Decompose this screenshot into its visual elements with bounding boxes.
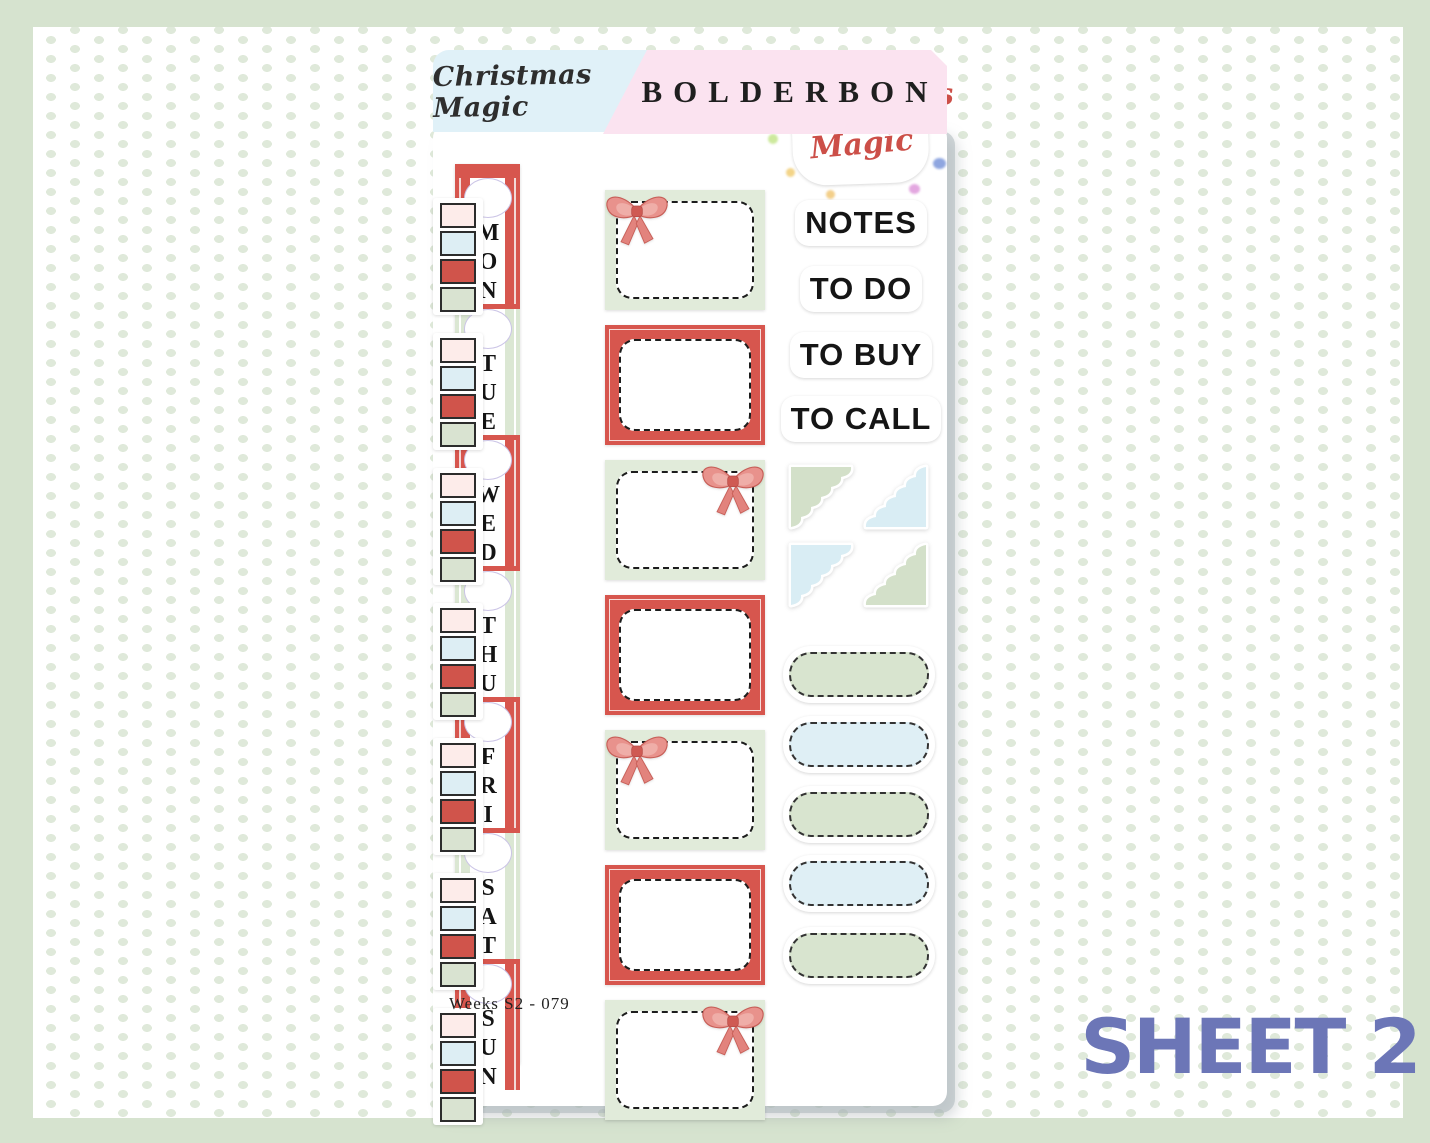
swatch-blue: [440, 231, 476, 256]
bow-icon: [599, 722, 675, 802]
swatch-red: [440, 799, 476, 824]
box-sticker-green: [605, 190, 765, 310]
swatch-pink: [440, 743, 476, 768]
swatch-blue: [440, 636, 476, 661]
sparkle-dot: [933, 158, 946, 169]
page-label: SHEET 2: [1075, 1002, 1425, 1091]
pill-sticker: [783, 855, 935, 912]
swatch-group-sticker: [433, 198, 483, 315]
box-sticker-green: [605, 460, 765, 580]
swatch-group-sticker: [433, 738, 483, 855]
brand-tab: BOLDERBON: [603, 50, 947, 134]
phrase-sticker: TO DO: [778, 266, 944, 312]
swatch-green: [440, 1097, 476, 1122]
swatch-pink: [440, 608, 476, 633]
swatch-green: [440, 557, 476, 582]
bow-icon: [599, 182, 675, 262]
swatch-group-sticker: [433, 333, 483, 450]
swatch-green: [440, 287, 476, 312]
writing-area: [619, 339, 751, 431]
swatch-green: [440, 422, 476, 447]
pill-fill-green: [789, 652, 929, 697]
swatch-green: [440, 827, 476, 852]
swatch-pink: [440, 203, 476, 228]
swatch-blue: [440, 906, 476, 931]
swatch-green: [440, 692, 476, 717]
pill-sticker: [783, 646, 935, 703]
writing-area: [619, 609, 751, 701]
box-sticker-red: [605, 595, 765, 715]
swatch-green: [440, 962, 476, 987]
swatch-red: [440, 529, 476, 554]
phrase-label: TO CALL: [781, 396, 942, 442]
phrase-label: TO BUY: [790, 332, 933, 378]
swatch-red: [440, 259, 476, 284]
swatch-red: [440, 664, 476, 689]
pill-fill-blue: [789, 722, 929, 767]
swatch-red: [440, 1069, 476, 1094]
phrase-sticker: NOTES: [778, 200, 944, 246]
box-sticker-green: [605, 1000, 765, 1120]
sparkle-dot: [909, 184, 920, 194]
swatch-red: [440, 394, 476, 419]
swatch-blue: [440, 501, 476, 526]
corner-sticker-green: [863, 542, 929, 608]
bow-icon: [695, 992, 771, 1072]
pill-fill-green: [789, 792, 929, 837]
pill-sticker: [783, 716, 935, 773]
strip-top-cap: [455, 164, 520, 173]
swatch-pink: [440, 338, 476, 363]
swatch-pink: [440, 878, 476, 903]
swatch-group-sticker: [433, 873, 483, 990]
brand-tab-label: BOLDERBON: [611, 74, 938, 110]
pill-sticker: [783, 927, 935, 984]
phrase-label: NOTES: [795, 200, 927, 246]
pill-fill-blue: [789, 861, 929, 906]
swatch-group-sticker: [433, 468, 483, 585]
box-sticker-red: [605, 865, 765, 985]
swatch-group-sticker: [433, 1008, 483, 1125]
sticker-sheet: Christmas Magic BOLDERBON MON TUE WED TH…: [433, 48, 947, 1123]
sheet-code: Weeks S2 - 079: [449, 994, 570, 1014]
phrase-label: TO DO: [800, 266, 923, 312]
swatch-blue: [440, 771, 476, 796]
pill-fill-green: [789, 933, 929, 978]
sparkle-dot: [826, 190, 835, 199]
swatch-blue: [440, 1041, 476, 1066]
swatch-group-sticker: [433, 603, 483, 720]
box-sticker-green: [605, 730, 765, 850]
bow-icon: [695, 452, 771, 532]
swatch-blue: [440, 366, 476, 391]
sparkle-dot: [768, 134, 778, 144]
swatch-pink: [440, 473, 476, 498]
box-sticker-red: [605, 325, 765, 445]
phrase-sticker: TO CALL: [778, 396, 944, 442]
corner-sticker-blue: [788, 542, 854, 608]
swatch-pink: [440, 1013, 476, 1038]
product-image: { "header": { "collection_tab": "Christm…: [0, 0, 1430, 1143]
swatch-red: [440, 934, 476, 959]
corner-sticker-green: [788, 464, 854, 530]
corner-sticker-blue: [863, 464, 929, 530]
writing-area: [619, 879, 751, 971]
pill-sticker: [783, 786, 935, 843]
phrase-sticker: TO BUY: [778, 332, 944, 378]
